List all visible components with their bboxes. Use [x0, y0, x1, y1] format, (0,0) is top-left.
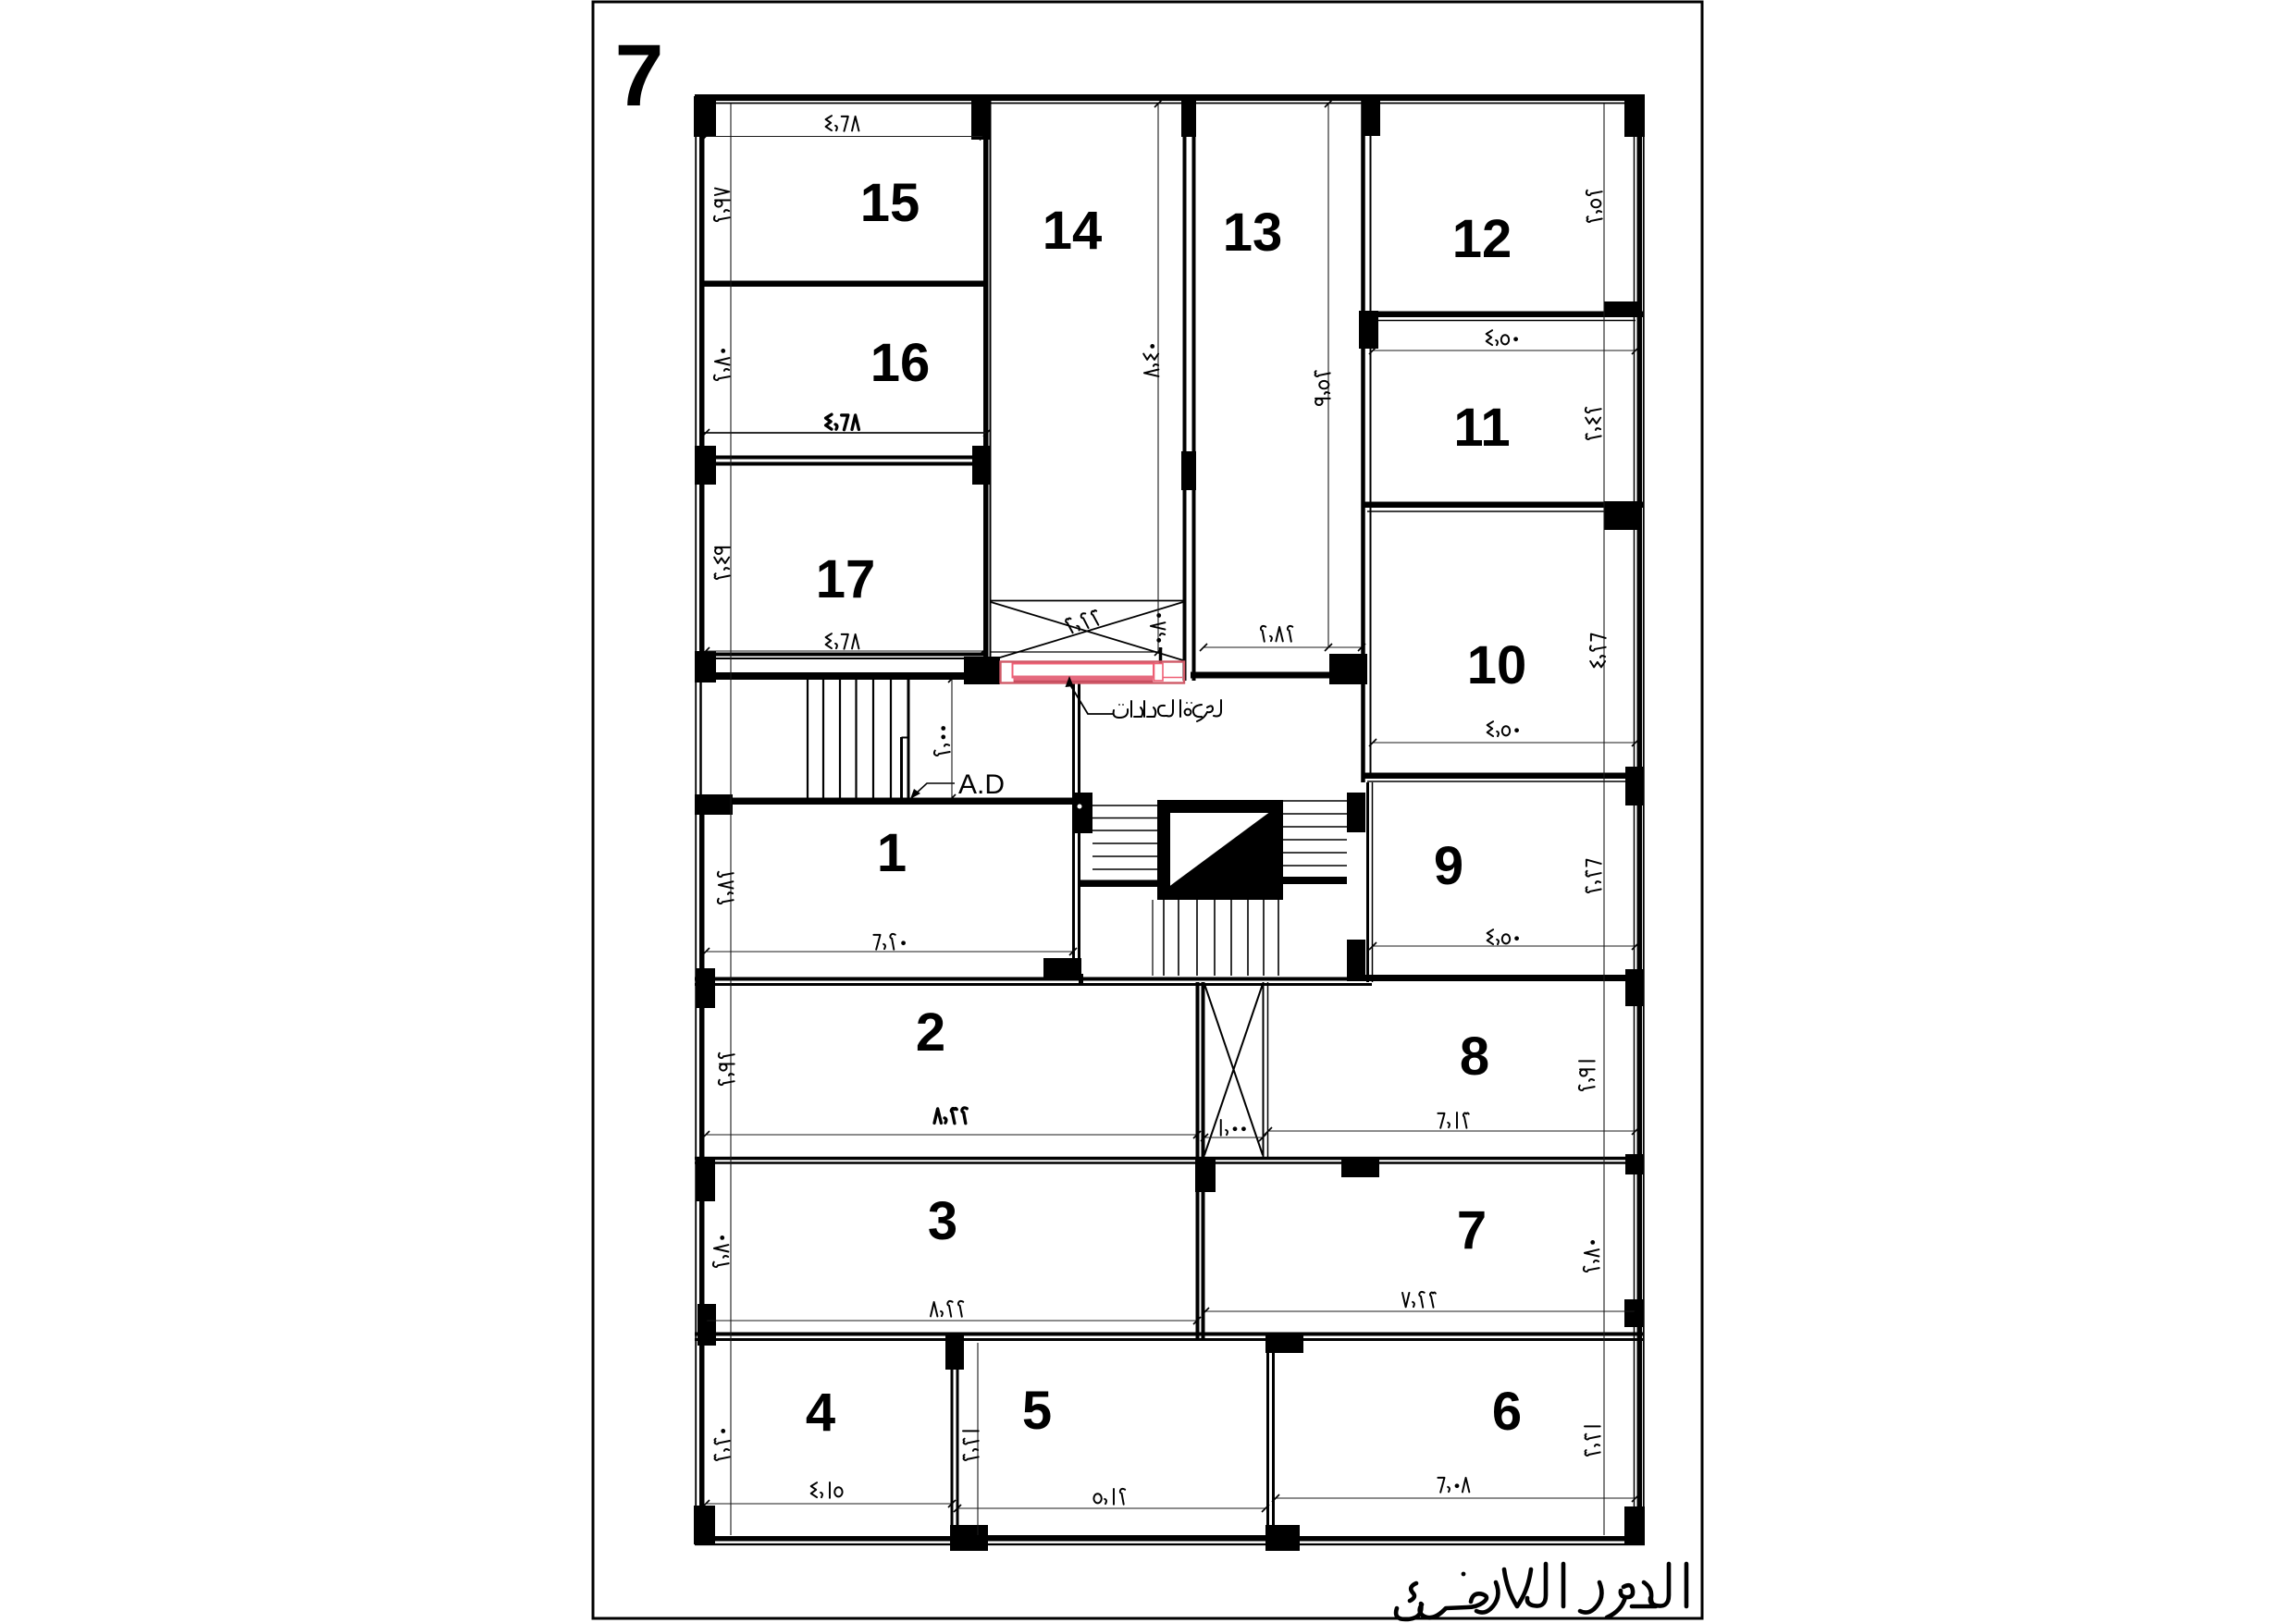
svg-text:12: 12: [1452, 209, 1512, 269]
svg-text:10: 10: [1467, 635, 1527, 695]
svg-text:11: 11: [1453, 398, 1510, 458]
svg-text:3: 3: [928, 1191, 957, 1251]
svg-text:15: 15: [860, 173, 920, 233]
svg-text:6: 6: [1492, 1382, 1522, 1442]
svg-text:2: 2: [916, 1002, 945, 1063]
svg-text:17: 17: [816, 549, 876, 609]
svg-text:4: 4: [806, 1383, 835, 1443]
svg-text:9: 9: [1434, 836, 1463, 896]
svg-text:8: 8: [1460, 1027, 1489, 1087]
svg-text:7: 7: [1457, 1200, 1487, 1260]
svg-text:7: 7: [615, 27, 664, 125]
svg-text:1: 1: [877, 823, 907, 883]
svg-text:16: 16: [870, 333, 931, 393]
svg-text:A.D: A.D: [958, 769, 1005, 800]
svg-text:5: 5: [1022, 1381, 1052, 1441]
svg-text:13: 13: [1223, 203, 1283, 263]
svg-text:14: 14: [1043, 201, 1103, 261]
